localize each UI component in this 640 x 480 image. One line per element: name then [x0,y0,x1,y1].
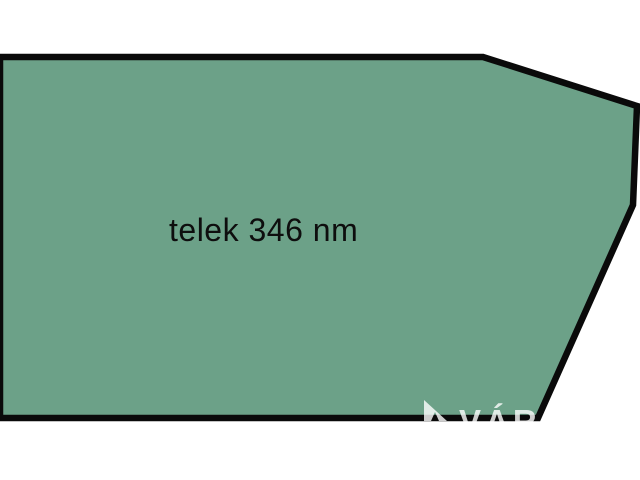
watermark-text: VÁR [459,404,541,440]
plot-diagram: telek 346 nm VÁR [0,0,640,480]
sail-triangle-icon [424,400,447,421]
plot-area-label: telek 346 nm [169,213,358,247]
